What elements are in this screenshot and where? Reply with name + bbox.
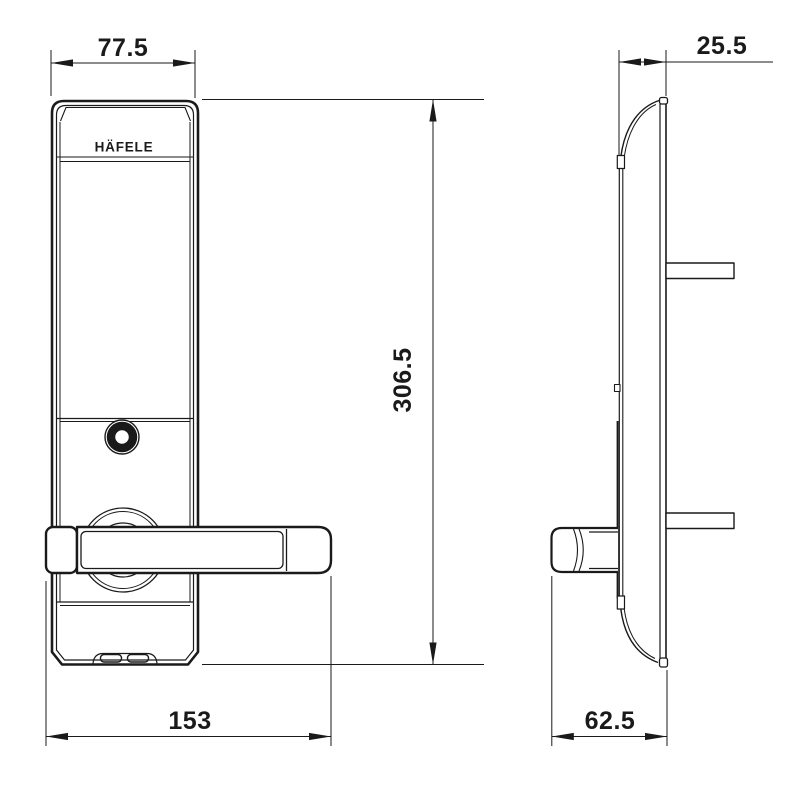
brand-logo: HÄFELE [95,140,154,155]
front-body-outer-outline [52,101,198,665]
technical-drawing-canvas: HÄFELE [0,0,800,800]
side-front-profile [615,101,660,663]
arrowhead-left-icon [552,733,574,740]
dimension-side-top-depth: 25.5 [619,32,773,155]
side-view: 25.5 62.5 [552,32,774,746]
back-plate-bottom-cap [660,658,668,667]
bottom-screw-cover-left [101,655,122,663]
dimension-front-height: 306.5 [202,100,484,665]
drawing-page: HÄFELE [0,0,800,800]
arrowhead-right-icon [173,59,195,66]
dimension-value-bottom-depth: 62.5 [585,707,636,735]
arrowhead-left-icon [619,58,641,65]
arrowhead-up-icon [429,100,436,122]
profile-sensor-notch [615,385,621,392]
top-profile-tab [617,156,624,169]
dimension-front-top-width: 77.5 [51,34,195,98]
bottom-screw-cover-right [128,655,149,663]
handle-side-outline [552,528,619,572]
front-bottom-section [57,602,193,664]
front-view: HÄFELE [46,34,484,746]
arrowhead-down-icon [429,643,436,665]
latch-bolt-top [666,263,734,279]
bottom-curve-outer [621,609,658,663]
keyhole-button [105,420,139,454]
dimension-value-top-depth: 25.5 [697,32,748,60]
top-cap-bevel-line [61,108,191,122]
keyhole-dark-ring [111,426,133,448]
handle-lever-outline [77,527,331,573]
lever-handle-front [46,527,331,573]
bottom-profile-tab [617,596,624,609]
top-cap-panel: HÄFELE [57,108,193,162]
dimension-value-height: 306.5 [389,347,417,412]
dimension-value-top-width: 77.5 [98,34,149,62]
dimension-value-bottom-width: 153 [168,707,211,735]
latch-bolt-bottom [666,513,734,529]
top-curve-outer [621,101,659,158]
arrowhead-right-icon [645,733,667,740]
arrowhead-right-icon [309,733,331,740]
dimension-side-bottom-depth: 62.5 [552,576,667,746]
arrowhead-left-icon [51,59,73,66]
arrowhead-right-icon [644,58,666,65]
side-back-plate [660,98,668,668]
lever-handle-side [552,528,619,572]
arrowhead-left-icon [46,733,68,740]
back-plate-top-cap [660,98,668,105]
handle-neck [46,527,77,573]
